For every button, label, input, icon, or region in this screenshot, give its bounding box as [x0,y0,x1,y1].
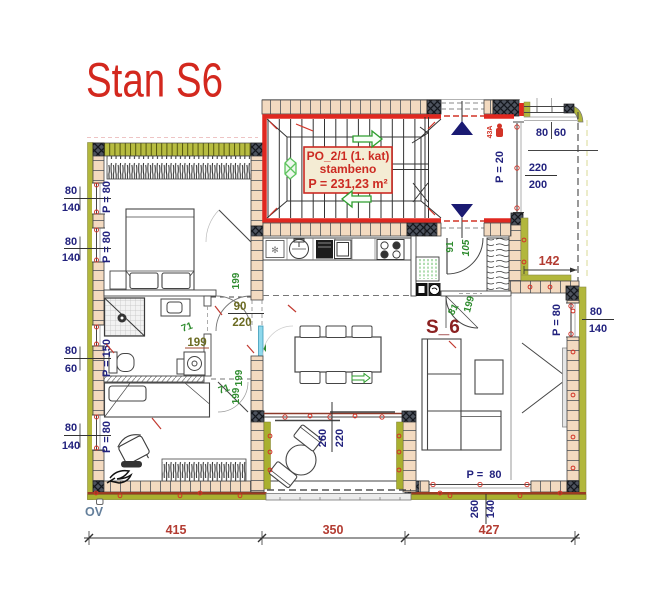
svg-text:stambeno: stambeno [320,162,377,176]
svg-text:260: 260 [317,429,329,447]
svg-text:260: 260 [469,500,481,518]
svg-text:80: 80 [65,185,77,197]
svg-text:140: 140 [62,252,80,264]
svg-text:P = 80: P = 80 [101,181,113,213]
svg-text:220: 220 [232,317,251,329]
svg-text:P = 80: P = 80 [467,469,502,481]
svg-text:P = 231,23 m²: P = 231,23 m² [308,177,387,191]
svg-text:80: 80 [65,345,77,357]
svg-text:200: 200 [529,179,547,191]
svg-text:140: 140 [62,202,80,214]
svg-text:350: 350 [323,523,344,537]
svg-text:90: 90 [234,301,247,313]
svg-text:140: 140 [589,323,607,335]
svg-text:415: 415 [166,523,187,537]
svg-text:80: 80 [590,306,602,318]
svg-text:OV: OV [85,505,104,519]
svg-text:Stan S6: Stan S6 [86,55,223,108]
svg-text:80: 80 [65,422,77,434]
svg-text:91: 91 [445,241,456,253]
svg-text:427: 427 [479,523,500,537]
svg-text:199: 199 [187,337,206,349]
svg-text:199: 199 [231,387,242,404]
svg-text:142: 142 [539,254,560,268]
svg-text:220: 220 [334,429,346,447]
svg-text:199: 199 [231,272,242,289]
svg-text:80: 80 [536,127,548,139]
svg-text:S_6: S_6 [426,317,460,338]
svg-text:80: 80 [65,236,77,248]
svg-text:43A: 43A [487,126,494,139]
svg-text:P = 20: P = 20 [494,151,506,183]
svg-text:P = 80: P = 80 [551,304,563,336]
svg-text:140: 140 [485,500,497,518]
svg-text:60: 60 [65,363,77,375]
svg-text:P = 80: P = 80 [101,231,113,263]
svg-text:220: 220 [529,162,547,174]
svg-text:105: 105 [461,239,472,256]
svg-text:✻: ✻ [271,245,279,255]
svg-text:199: 199 [234,369,245,386]
svg-text:140: 140 [62,440,80,452]
svg-text:P = 80: P = 80 [101,421,113,453]
svg-text:PO_2/1 (1. kat): PO_2/1 (1. kat) [307,149,390,163]
svg-text:60: 60 [554,127,566,139]
